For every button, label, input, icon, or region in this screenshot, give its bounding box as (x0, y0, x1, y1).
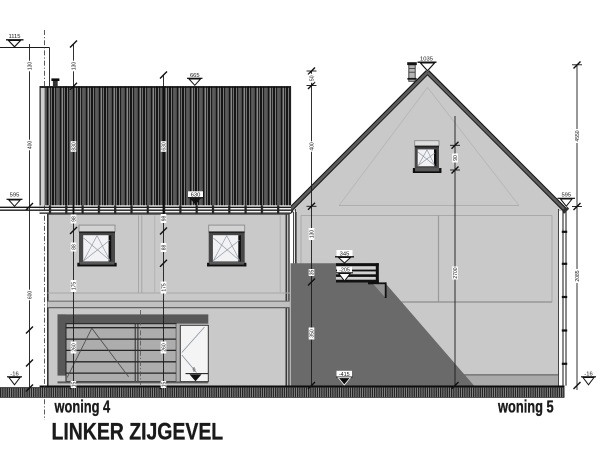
svg-text:88: 88 (161, 245, 167, 251)
svg-text:15: 15 (161, 382, 167, 388)
svg-text:595: 595 (561, 193, 571, 199)
svg-text:350: 350 (309, 329, 315, 338)
svg-text:35: 35 (309, 270, 315, 276)
svg-text:175: 175 (161, 283, 167, 292)
svg-text:50: 50 (309, 75, 315, 81)
svg-text:90: 90 (453, 155, 459, 161)
svg-text:2700: 2700 (453, 267, 459, 278)
svg-text:98: 98 (71, 216, 77, 222)
svg-text:15: 15 (71, 382, 77, 388)
svg-text:595: 595 (10, 193, 20, 199)
svg-text:130: 130 (71, 62, 77, 71)
svg-text:400: 400 (309, 142, 315, 151)
svg-text:LINKER ZIJGEVEL: LINKER ZIJGEVEL (52, 417, 224, 444)
svg-text:630: 630 (161, 142, 167, 151)
svg-text:woning 5: woning 5 (497, 398, 554, 417)
svg-text:130: 130 (27, 62, 33, 71)
svg-text:600: 600 (27, 291, 33, 300)
svg-text:260: 260 (161, 343, 167, 352)
svg-text:1115: 1115 (8, 34, 20, 40)
svg-text:4550: 4550 (575, 130, 581, 141)
svg-text:98: 98 (161, 216, 167, 222)
svg-text:130: 130 (309, 230, 315, 239)
svg-text:175: 175 (71, 282, 77, 291)
svg-text:woning 4: woning 4 (54, 398, 111, 417)
svg-text:260: 260 (71, 343, 77, 352)
svg-text:2085: 2085 (575, 270, 581, 281)
svg-text:830: 830 (71, 142, 77, 151)
svg-text:0: 0 (193, 368, 196, 374)
svg-text:400: 400 (27, 141, 33, 150)
svg-text:88: 88 (71, 244, 77, 250)
